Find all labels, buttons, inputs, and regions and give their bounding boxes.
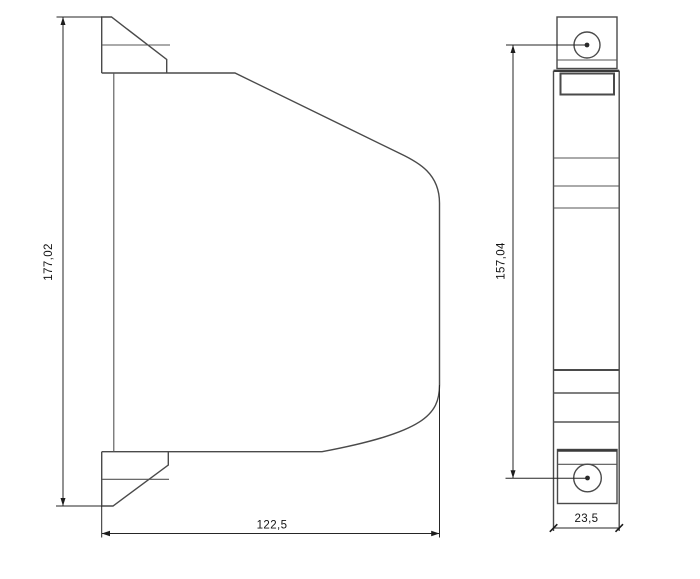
side-view: 177,02 122,5 (43, 17, 440, 538)
arrowhead-right (431, 531, 439, 536)
side-view-width-dimension: 122,5 (102, 385, 440, 538)
arrowhead-up (61, 17, 66, 25)
arrowhead-up (511, 45, 516, 53)
drawing-canvas: 177,02 122,5 (0, 0, 700, 579)
hole-spacing-dimension-label: 157,04 (496, 242, 508, 280)
height-dimension-label: 177,02 (43, 243, 55, 281)
technical-drawing-sheet: 177,02 122,5 (0, 0, 700, 579)
front-view: 157,04 23,5 (496, 17, 624, 532)
arrowhead-down (61, 498, 66, 506)
arrowhead-left (102, 531, 110, 536)
side-view-height-dimension: 177,02 (43, 17, 102, 506)
housing-body-outline (102, 73, 440, 452)
width-dimension-label: 122,5 (257, 520, 288, 532)
rail-width-dimension-label: 23,5 (575, 513, 599, 525)
front-view-width-dimension: 23,5 (550, 513, 623, 532)
front-view-hole-spacing-dimension: 157,04 (496, 45, 588, 478)
arrowhead-down (511, 470, 516, 478)
label-window (561, 74, 615, 95)
